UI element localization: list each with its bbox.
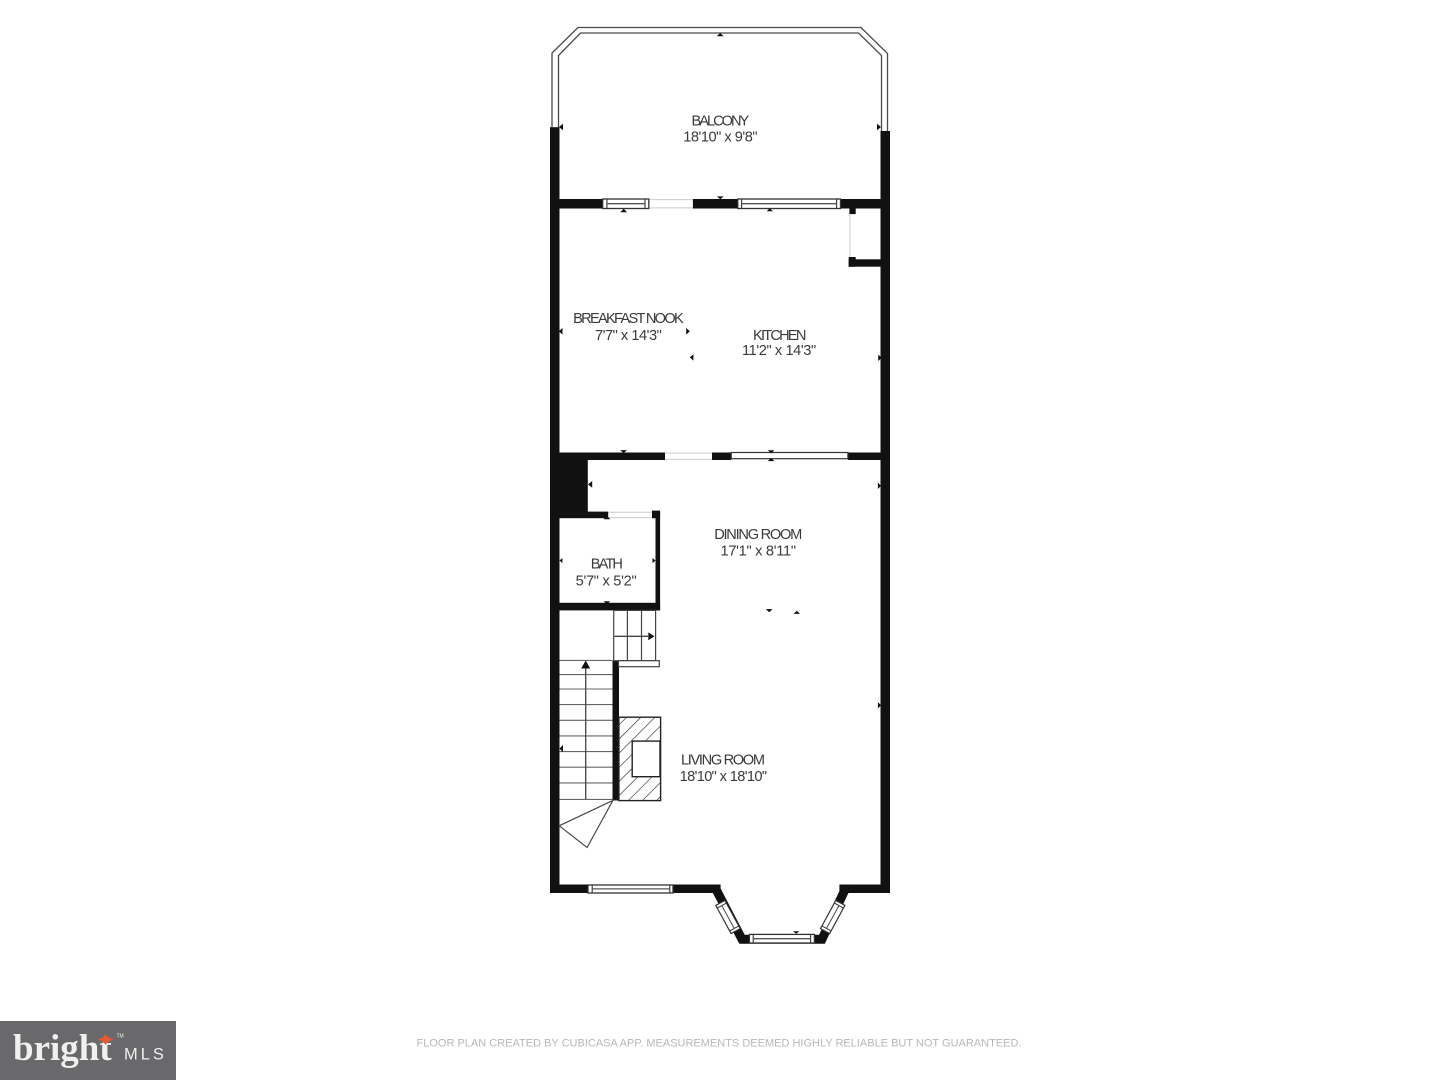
svg-text:18'10" x 18'10": 18'10" x 18'10" xyxy=(680,769,767,785)
svg-text:BALCONY: BALCONY xyxy=(692,114,750,130)
svg-text:7'7" x 14'3": 7'7" x 14'3" xyxy=(595,328,662,344)
svg-text:MLS: MLS xyxy=(124,1046,167,1064)
svg-text:11'2" x 14'3": 11'2" x 14'3" xyxy=(742,343,816,359)
svg-text:5'7" x 5'2": 5'7" x 5'2" xyxy=(576,574,637,590)
svg-text:18'10" x 9'8": 18'10" x 9'8" xyxy=(683,130,757,146)
svg-text:17'1" x 8'11": 17'1" x 8'11" xyxy=(721,544,797,560)
svg-text:BATH: BATH xyxy=(591,557,623,573)
svg-text:KITCHEN: KITCHEN xyxy=(753,328,806,344)
svg-text:DINING ROOM: DINING ROOM xyxy=(714,527,802,543)
svg-text:bright: bright xyxy=(13,1028,112,1069)
svg-text:FLOOR PLAN CREATED BY CUBICASA: FLOOR PLAN CREATED BY CUBICASA APP. MEAS… xyxy=(417,1038,1022,1050)
svg-text:LIVING ROOM: LIVING ROOM xyxy=(681,752,765,768)
svg-text:TM: TM xyxy=(117,1034,124,1040)
svg-text:BREAKFAST NOOK: BREAKFAST NOOK xyxy=(573,311,684,327)
